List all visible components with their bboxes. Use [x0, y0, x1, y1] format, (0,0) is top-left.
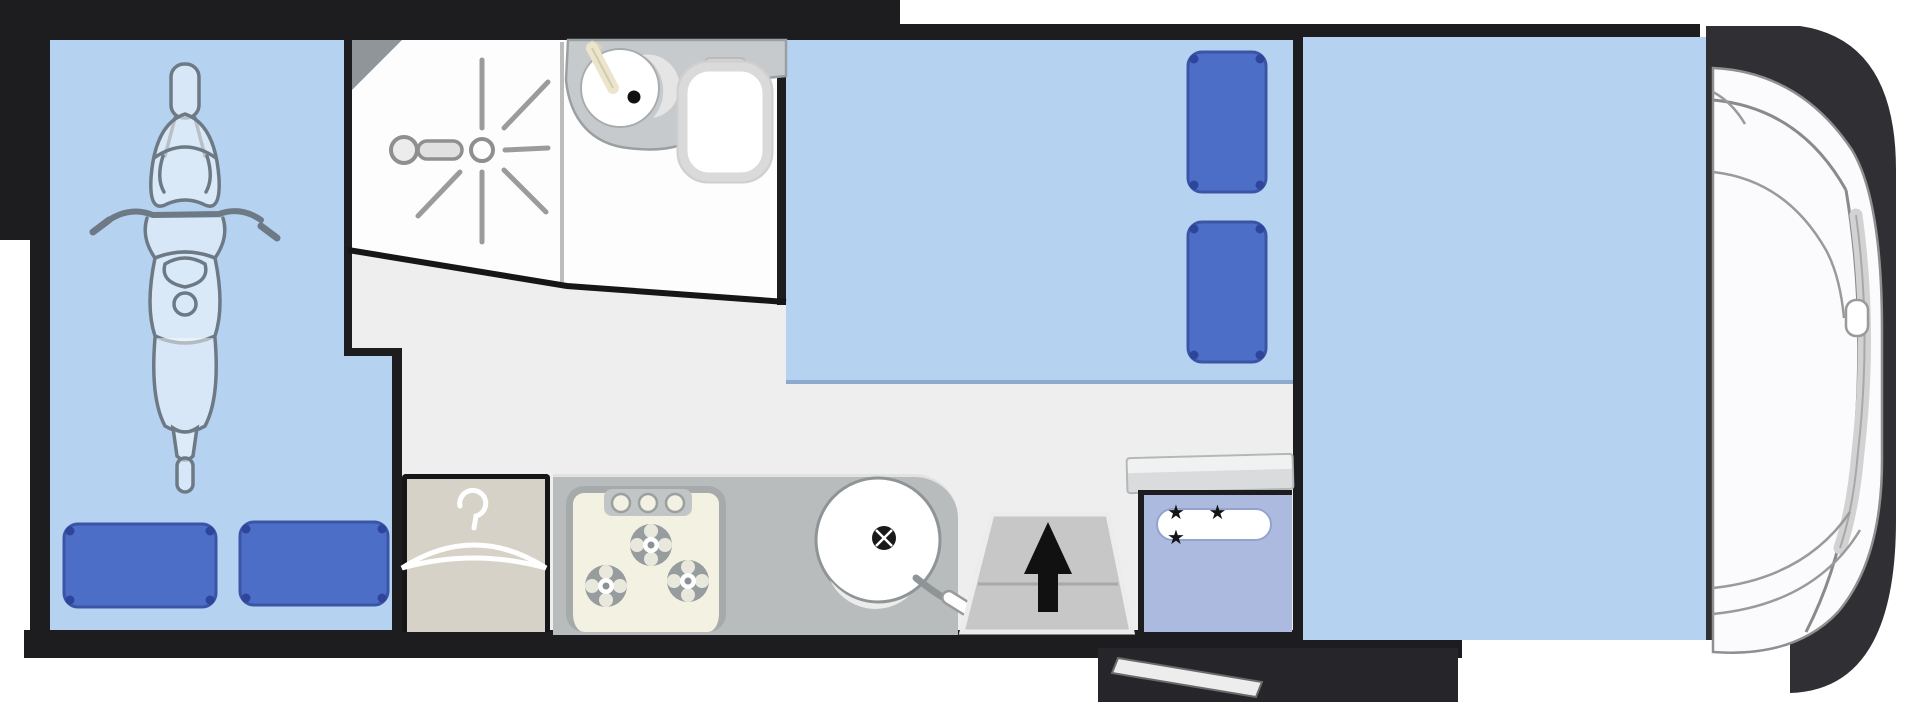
stove-hob: [566, 486, 726, 632]
wardrobe-cabinet: [402, 474, 550, 632]
cab-body: [1713, 68, 1882, 653]
windscreen-top-line: [1713, 100, 1846, 190]
door-handle: [1846, 300, 1868, 336]
entry-step-housing: [1098, 648, 1458, 702]
cab-shadow: [1706, 26, 1896, 693]
garage-room-extension: [348, 352, 396, 630]
mirror-line: [1713, 92, 1745, 124]
wall-top-left: [0, 0, 900, 40]
wall-bathroom-right: [777, 40, 786, 305]
fridge-star-rating-badge: ★ ★ ★: [1156, 508, 1272, 541]
motorhome-floor-plan: ★ ★ ★: [0, 0, 1920, 724]
hood-line-1: [1713, 512, 1850, 588]
dashboard-line: [1713, 172, 1844, 318]
a-pillar-line: [1806, 190, 1859, 632]
wall-left: [30, 0, 52, 650]
side-window-edge: [1840, 215, 1865, 548]
fridge-top-shelf-highlight: [1128, 455, 1292, 473]
garage-room: [50, 40, 348, 630]
cab: [1706, 26, 1896, 693]
wall-garage-lower: [392, 348, 402, 630]
wall-bed-right: [1293, 24, 1303, 640]
lounge-area: [1303, 37, 1712, 640]
fridge-top-shelf: [1126, 453, 1295, 494]
wall-garage-upper: [344, 40, 352, 354]
bed-area: [786, 40, 1293, 384]
side-window: [1840, 215, 1865, 548]
hood-line-2: [1713, 530, 1860, 614]
